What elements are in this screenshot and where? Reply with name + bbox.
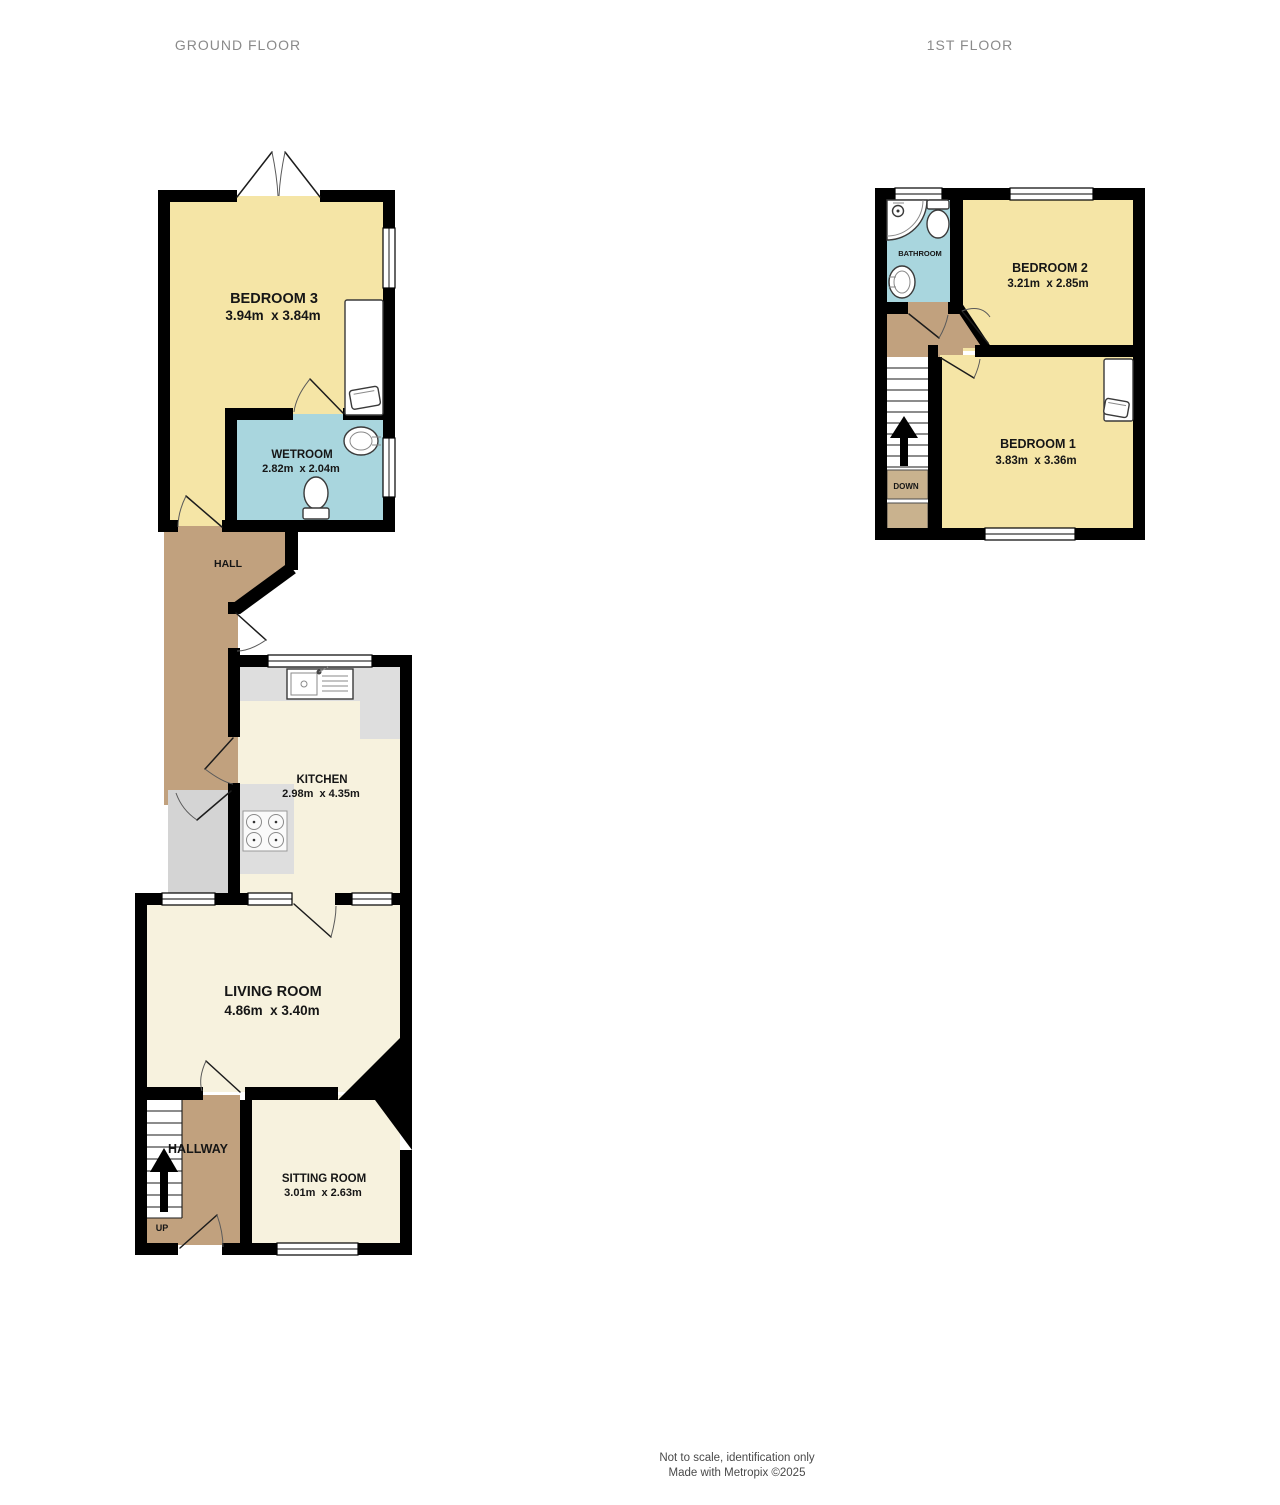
side-entrance-door xyxy=(236,613,266,651)
wetroom-dims: 2.82m x 2.04m xyxy=(262,463,340,475)
down-label: DOWN xyxy=(893,482,919,491)
toilet-icon-bathroom xyxy=(927,200,949,238)
store-room-window xyxy=(162,893,215,905)
footer-disclaimer: Not to scale, identification only xyxy=(659,1452,815,1464)
living-room-label: LIVING ROOM xyxy=(224,984,321,1000)
bedroom3-label: BEDROOM 3 xyxy=(230,291,318,307)
first-floor-title: 1ST FLOOR xyxy=(927,37,1014,53)
floorplan-drawing: BEDROOM 3 3.94m x 3.84m WETROOM 2.82m x … xyxy=(0,0,1280,1505)
ground-floor-title: GROUND FLOOR xyxy=(175,37,301,53)
bedroom3-window xyxy=(383,228,395,288)
bedroom2-window xyxy=(1010,188,1093,200)
kitchen-window xyxy=(268,655,372,667)
sitting-room-label: SITTING ROOM xyxy=(282,1173,366,1185)
bathroom-label: BATHROOM xyxy=(898,249,942,258)
store-room-floor xyxy=(168,790,230,895)
kitchen-dims: 2.98m x 4.35m xyxy=(282,788,360,800)
wetroom-window xyxy=(383,438,395,497)
kitchen-label: KITCHEN xyxy=(296,774,347,786)
bed-icon-bedroom1 xyxy=(1103,359,1133,421)
sitting-room-floor xyxy=(245,1095,400,1245)
bedroom3-entrance-double-door xyxy=(237,152,320,197)
hallway-label: HALLWAY xyxy=(168,1142,229,1156)
hall-label: HALL xyxy=(214,558,243,570)
bedroom2-label: BEDROOM 2 xyxy=(1012,261,1088,275)
bedroom1-label: BEDROOM 1 xyxy=(1000,437,1076,451)
bed-icon-bedroom3 xyxy=(345,300,383,415)
footer-credit: Made with Metropix ©2025 xyxy=(669,1467,806,1479)
up-label: UP xyxy=(156,1223,169,1233)
bedroom3-dims: 3.94m x 3.84m xyxy=(225,308,320,323)
sitting-room-window xyxy=(277,1243,358,1255)
basin-icon-bathroom xyxy=(889,266,915,298)
toilet-icon-wetroom xyxy=(303,477,329,519)
sitting-room-dims: 3.01m x 2.63m xyxy=(284,1187,362,1199)
bathroom-window xyxy=(895,188,942,200)
stairs-down xyxy=(887,357,928,533)
living-room-dims: 4.86m x 3.40m xyxy=(224,1003,319,1018)
first-floor-plan: BATHROOM BEDROOM 2 3.21m x 2.85m BEDROOM… xyxy=(875,188,1145,540)
hob-icon-kitchen xyxy=(243,811,287,851)
floorplan-page: BEDROOM 3 3.94m x 3.84m WETROOM 2.82m x … xyxy=(0,0,1280,1505)
bedroom2-dims: 3.21m x 2.85m xyxy=(1007,278,1088,290)
kitchen-counter-right xyxy=(360,667,400,739)
stairs-up xyxy=(147,1100,182,1218)
wetroom-label: WETROOM xyxy=(271,449,332,461)
living-room-window-right xyxy=(352,893,392,905)
bedroom1-dims: 3.83m x 3.36m xyxy=(995,455,1076,467)
bedroom1-window xyxy=(985,528,1075,540)
living-room-window-left xyxy=(248,893,292,905)
ground-floor-plan: BEDROOM 3 3.94m x 3.84m WETROOM 2.82m x … xyxy=(135,152,412,1255)
sink-icon-kitchen xyxy=(287,667,353,699)
